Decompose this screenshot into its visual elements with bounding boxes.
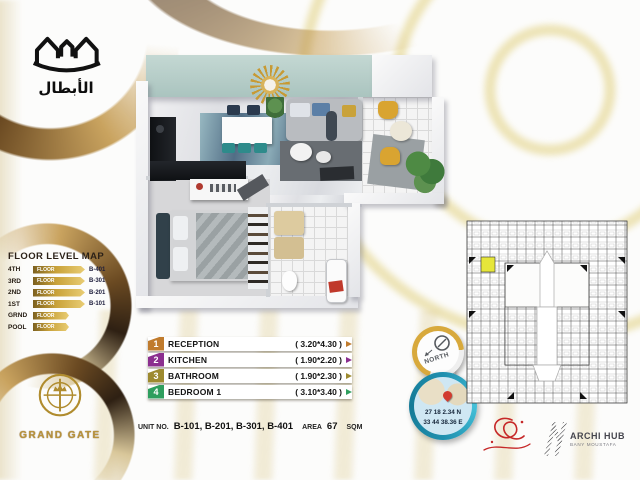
area-value: 67	[327, 421, 338, 432]
floor-row: 1ST FLOOR B-101	[8, 300, 126, 309]
left-exterior-wall	[136, 81, 148, 308]
area-unit: SQM	[347, 424, 363, 431]
floor-row: GRND FLOOR	[8, 311, 126, 320]
floor-row: POOL FLOOR	[8, 323, 126, 332]
coordinate-longitude: 33 44 38.36 E	[414, 418, 472, 428]
dining-chair	[254, 143, 267, 153]
dining-chair	[222, 143, 235, 153]
floor-unit: B-301	[89, 278, 105, 284]
legend-arrow-icon	[346, 389, 352, 395]
floor-level-map: FLOOR LEVEL MAP 4TH FLOOR B-401 3RD FLOO…	[8, 251, 126, 334]
courtyard-corridor	[537, 307, 557, 365]
bathroom-top-wall	[266, 203, 352, 207]
stair-core	[507, 265, 514, 272]
apartment-3d-floorplan	[130, 55, 466, 318]
floor-row: 3RD FLOOR B-301	[8, 277, 126, 286]
legend-number-tag: 3	[148, 369, 164, 383]
archi-hub-mark-icon	[540, 420, 570, 458]
kitchen-sink	[156, 125, 164, 133]
legend-row: 1 RECEPTION ( 3.20*4.30 )	[148, 337, 352, 351]
tv-panel	[320, 166, 355, 181]
floor-bar: FLOOR	[33, 312, 69, 320]
calligraphy-signature-icon	[478, 412, 536, 460]
sofa-pillow	[290, 103, 310, 117]
bottom-exterior-wall	[136, 296, 358, 308]
unit-info: UNIT NO. B-101, B-201, B-301, B-401 AREA…	[138, 421, 378, 432]
floor-row: 2ND FLOOR B-201	[8, 288, 126, 297]
archi-hub-name: ARCHI HUB	[570, 431, 625, 441]
shower-bench	[274, 211, 304, 235]
floor-level: 1ST	[8, 301, 33, 308]
toilet	[282, 271, 297, 291]
inner-unit-block	[505, 307, 537, 365]
vanity-flowers	[196, 183, 203, 190]
balcony-chair	[378, 101, 398, 119]
large-plant	[402, 143, 448, 195]
legend-room-name: BATHROOM	[164, 371, 219, 381]
legend-room-name: RECEPTION	[164, 339, 219, 349]
legend-room-dims: ( 3.10*3.40 )	[295, 387, 344, 397]
bed-headboard	[156, 213, 170, 279]
legend-arrow-icon	[346, 341, 352, 347]
courtyard-corridor	[540, 251, 554, 307]
floor-level: 2ND	[8, 289, 33, 296]
dining-chair	[227, 105, 240, 115]
red-towel	[328, 280, 343, 293]
balcony-chair	[380, 147, 400, 165]
developer-name-arabic: الأبطال	[10, 79, 122, 97]
floor-row: 4TH FLOOR B-401	[8, 265, 126, 274]
grand-gate-logo: GRAND GATE	[12, 372, 108, 441]
vanity-decor	[210, 184, 236, 192]
dining-chair	[247, 105, 260, 115]
dining-table	[222, 117, 272, 144]
wardrobe	[248, 207, 268, 289]
room-legend: 1 RECEPTION ( 3.20*4.30 ) 2 KITCHEN ( 1.…	[148, 337, 352, 401]
bed-pillow	[173, 247, 188, 271]
legend-room-name: BEDROOM 1	[164, 387, 221, 397]
floor-level: POOL	[8, 324, 33, 331]
coffee-table	[290, 143, 312, 161]
floor-unit: B-101	[89, 301, 105, 307]
location-pin-icon	[441, 389, 454, 402]
back-wall-corner	[372, 55, 432, 97]
floor-level: 4TH	[8, 266, 33, 273]
compass-face: NORTH	[417, 331, 459, 373]
castle-icon	[16, 26, 116, 76]
archi-hub-logo: ARCHI HUB BANY MOUSTAFA	[540, 420, 638, 458]
sofa-throw	[342, 105, 356, 117]
dining-chair	[238, 143, 251, 153]
unit-numbers: B-101, B-201, B-301, B-401	[174, 421, 293, 432]
shower-bench	[274, 237, 304, 259]
grand-gate-name: GRAND GATE	[12, 430, 108, 441]
bed-pillow	[173, 216, 188, 240]
floor-unit: B-401	[89, 267, 105, 273]
compass-icon	[417, 331, 459, 373]
legend-number-tag: 1	[148, 337, 164, 351]
coffee-table	[316, 151, 331, 163]
brochure-page: الأبطال FLOOR LEVEL MAP 4TH FLOOR B-401 …	[0, 0, 640, 480]
floor-bar: FLOOR	[33, 277, 85, 285]
legend-row: 2 KITCHEN ( 1.90*2.20 )	[148, 353, 352, 367]
floor-bar: FLOOR	[33, 323, 69, 331]
floor-bar: FLOOR	[33, 266, 85, 274]
balcony-table	[390, 121, 412, 141]
sunburst-mirror-center	[261, 76, 279, 94]
person-figure	[326, 111, 337, 141]
plant	[266, 97, 284, 119]
floor-bar: FLOOR	[33, 300, 85, 308]
floor-level-map-title: FLOOR LEVEL MAP	[8, 251, 126, 262]
legend-arrow-icon	[346, 357, 352, 363]
archi-hub-subtitle: BANY MOUSTAFA	[570, 442, 625, 447]
north-compass-badge: NORTH	[412, 326, 464, 378]
developer-logo: الأبطال	[10, 26, 122, 97]
area-label: AREA	[302, 424, 322, 431]
kitchen-counter-horizontal	[150, 161, 246, 180]
inner-unit-block	[557, 307, 589, 365]
floor-level: GRND	[8, 312, 33, 319]
grand-gate-emblem-icon	[31, 372, 89, 424]
highlighted-unit	[481, 257, 495, 272]
legend-number-tag: 4	[148, 385, 164, 399]
bed-blanket	[196, 213, 248, 279]
floor-bar: FLOOR	[33, 289, 85, 297]
unit-no-label: UNIT NO.	[138, 424, 169, 431]
floor-level: 3RD	[8, 278, 33, 285]
building-site-plan	[463, 213, 631, 411]
right-exterior-wall	[348, 203, 360, 297]
archi-hub-text: ARCHI HUB BANY MOUSTAFA	[570, 431, 625, 447]
floor-unit: B-201	[89, 290, 105, 296]
legend-number-tag: 2	[148, 353, 164, 367]
legend-arrow-icon	[346, 373, 352, 379]
stair-core	[580, 265, 587, 272]
legend-row: 3 BATHROOM ( 1.90*2.30 )	[148, 369, 352, 383]
legend-room-dims: ( 1.90*2.20 )	[295, 355, 344, 365]
legend-row: 4 BEDROOM 1 ( 3.10*3.40 )	[148, 385, 352, 399]
legend-room-dims: ( 1.90*2.30 )	[295, 371, 344, 381]
legend-room-name: KITCHEN	[164, 355, 207, 365]
legend-room-dims: ( 3.20*4.30 )	[295, 339, 344, 349]
